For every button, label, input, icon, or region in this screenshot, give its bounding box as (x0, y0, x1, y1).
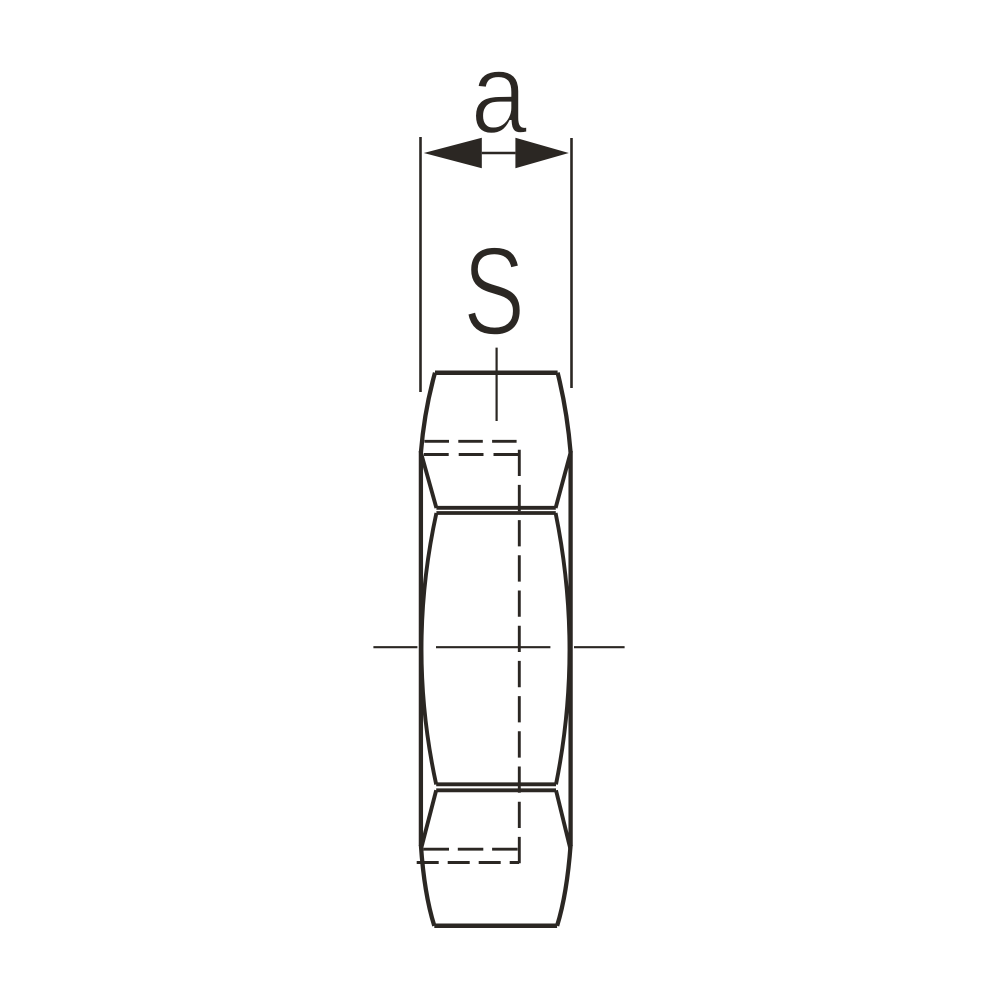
svg-text:S: S (463, 222, 525, 362)
